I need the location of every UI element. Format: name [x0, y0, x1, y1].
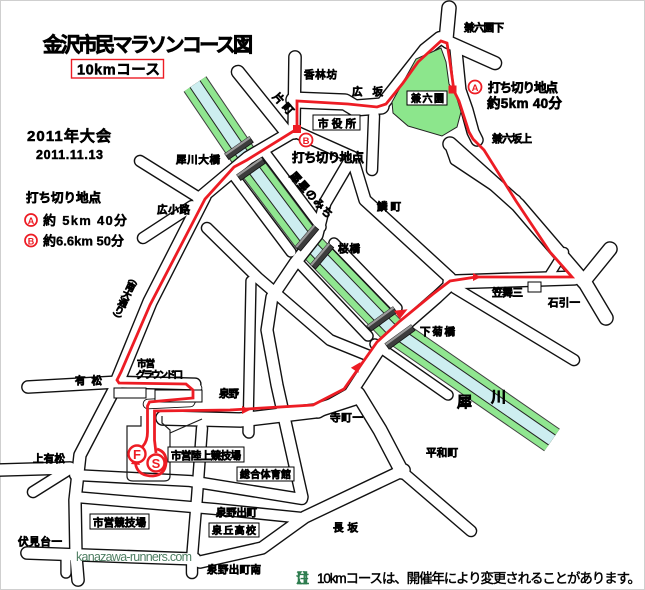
svg-text:石引一: 石引一 [547, 296, 581, 309]
svg-text:市営競技場: 市営競技場 [93, 516, 147, 529]
svg-text:市役所: 市役所 [318, 117, 357, 130]
svg-text:桜橋: 桜橋 [338, 242, 361, 255]
svg-text:打ち切り地点: 打ち切り地点 [26, 190, 101, 205]
svg-text:S: S [152, 456, 161, 471]
svg-text:泉丘高校: 泉丘高校 [211, 524, 257, 537]
svg-text:平和町: 平和町 [426, 446, 459, 459]
svg-text:市営: 市営 [137, 358, 155, 370]
svg-text:金沢市民マラソンコース図: 金沢市民マラソンコース図 [42, 33, 253, 57]
svg-text:【注】: 【注】 [289, 571, 316, 586]
svg-text:打ち切り地点: 打ち切り地点 [292, 150, 364, 165]
svg-text:F: F [133, 447, 141, 462]
svg-text:約5km 40分: 約5km 40分 [487, 95, 563, 111]
svg-text:泉野出町: 泉野出町 [215, 506, 258, 519]
svg-text:市営陸上競技場: 市営陸上競技場 [171, 449, 242, 462]
svg-text:約6.6km 50分: 約6.6km 50分 [43, 234, 124, 249]
svg-text:犀川大橋: 犀川大橋 [175, 153, 221, 166]
svg-text:兼六園: 兼六園 [411, 92, 444, 105]
svg-text:有 松: 有 松 [75, 374, 103, 387]
svg-text:笠舞三: 笠舞三 [491, 286, 524, 299]
svg-text:泉野出町南: 泉野出町南 [206, 563, 262, 576]
svg-text:広 坂: 広 坂 [352, 85, 384, 98]
svg-text:約 5km 40分: 約 5km 40分 [43, 213, 127, 228]
svg-text:川: 川 [490, 389, 506, 406]
svg-text:寺町一: 寺町一 [330, 411, 364, 424]
svg-text:広小路: 広小路 [157, 203, 191, 216]
svg-text:2011年大会: 2011年大会 [27, 127, 111, 145]
svg-text:10kmコース: 10kmコース [77, 63, 160, 79]
svg-text:グラウンド口: グラウンド口 [136, 369, 183, 381]
svg-text:香林坊: 香林坊 [303, 68, 338, 81]
svg-text:2011.11.13: 2011.11.13 [36, 148, 103, 162]
svg-text:打ち切り地点: 打ち切り地点 [488, 80, 558, 95]
svg-text:鱗 町: 鱗 町 [376, 200, 402, 213]
svg-text:長 坂: 長 坂 [333, 521, 359, 534]
svg-text:B: B [303, 136, 310, 147]
svg-text:伏見台一: 伏見台一 [18, 535, 63, 548]
svg-text:総合体育館: 総合体育館 [240, 468, 291, 481]
svg-text:上有松: 上有松 [33, 452, 66, 465]
svg-text:A: A [472, 83, 479, 94]
svg-text:下菊橋: 下菊橋 [420, 325, 456, 338]
svg-text:kanazawa-runners.com: kanazawa-runners.com [76, 550, 192, 564]
svg-text:A: A [28, 216, 35, 226]
svg-text:兼六園下: 兼六園下 [464, 21, 505, 34]
svg-text:兼六坂上: 兼六坂上 [492, 132, 533, 145]
svg-text:10kmコースは、開催年により変更されることがあります。: 10kmコースは、開催年により変更されることがあります。 [317, 570, 641, 586]
svg-text:B: B [28, 237, 35, 247]
svg-text:泉野: 泉野 [218, 387, 240, 400]
svg-text:犀: 犀 [456, 394, 472, 411]
